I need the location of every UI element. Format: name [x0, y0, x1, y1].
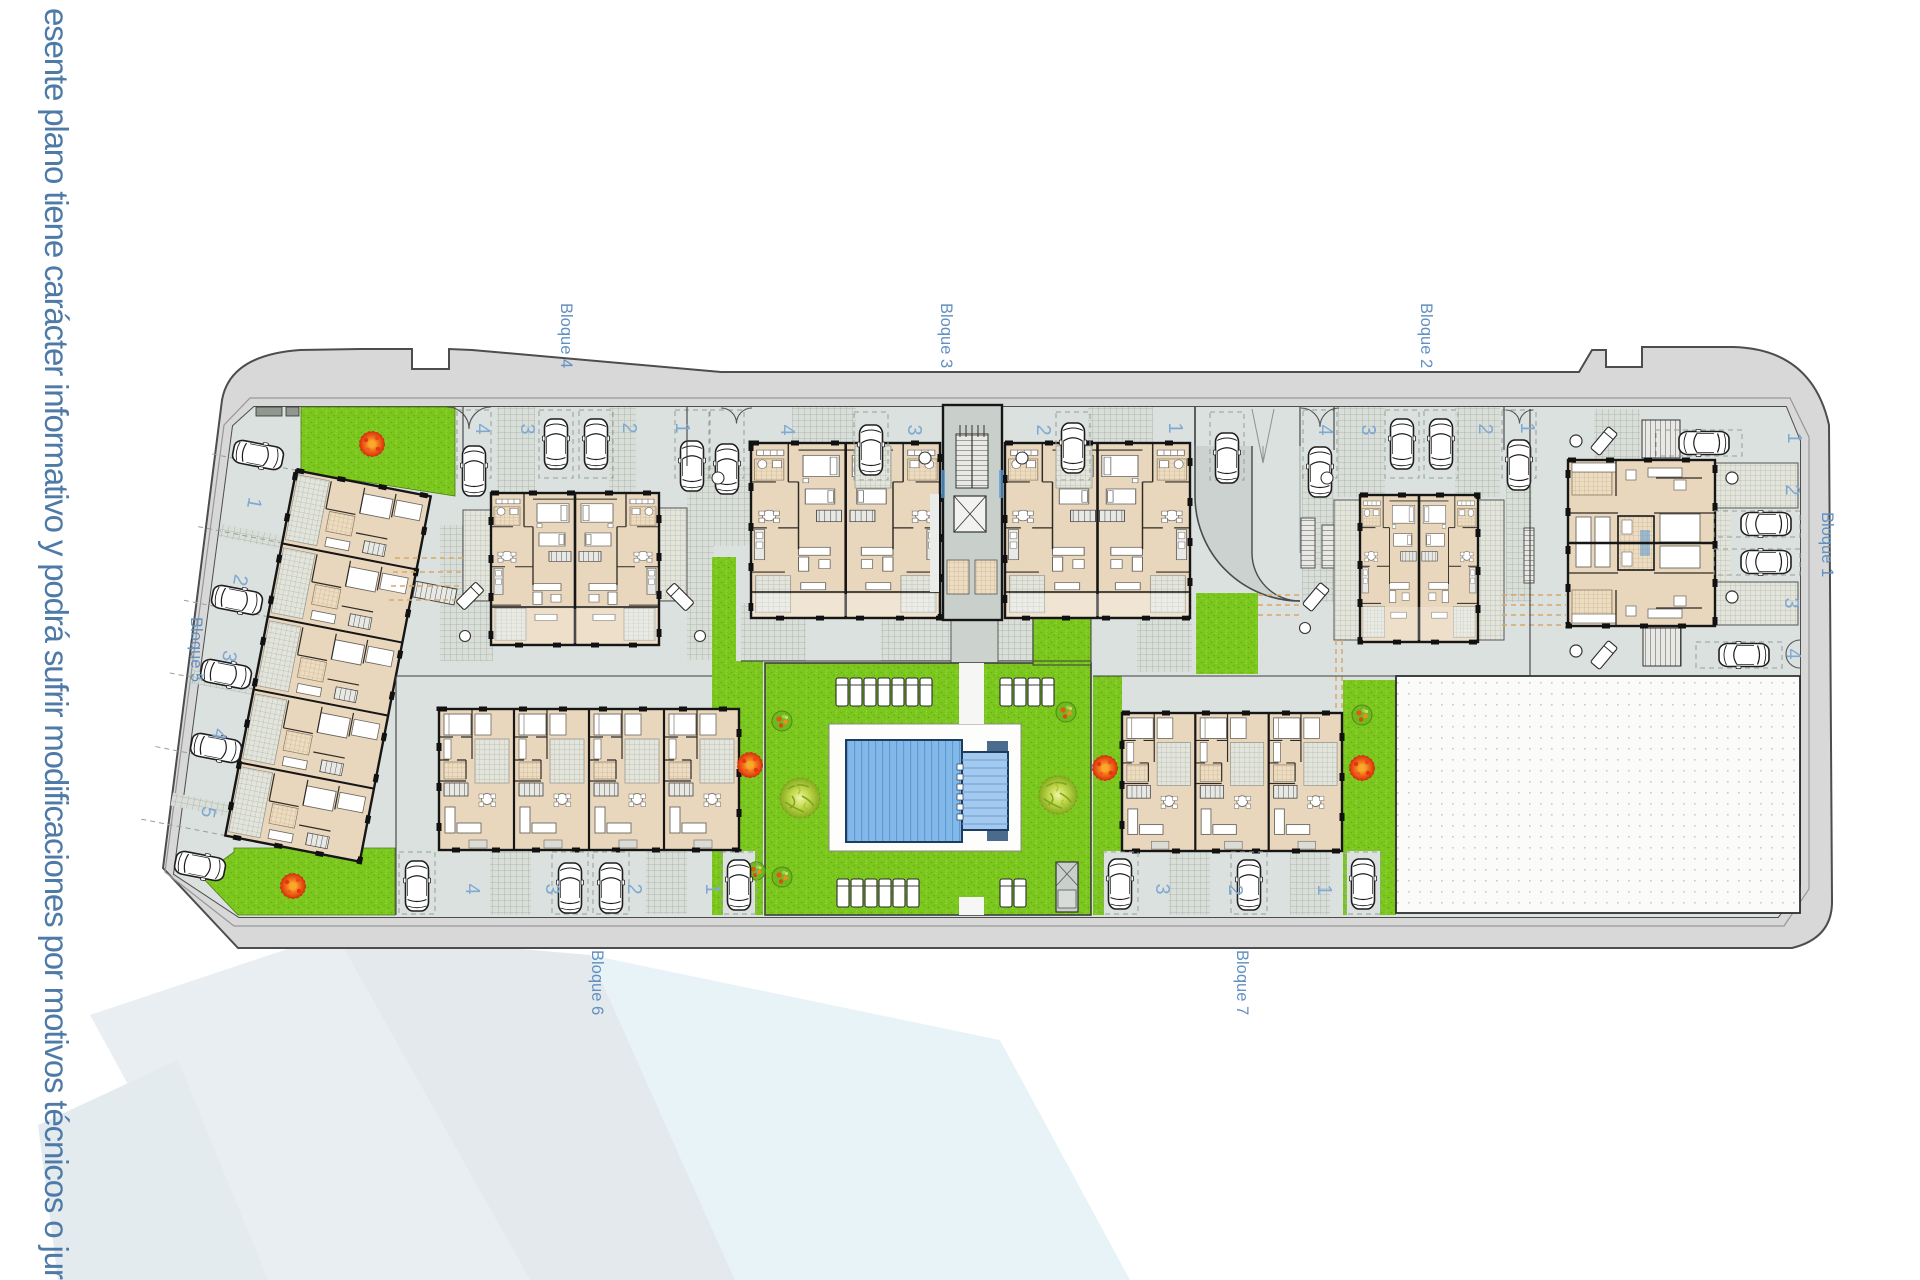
svg-text:3: 3: [1357, 424, 1379, 435]
svg-text:3: 3: [1780, 597, 1802, 608]
svg-text:esente plano tiene carácter in: esente plano tiene carácter informativo …: [38, 8, 75, 1280]
svg-text:Bloque 6: Bloque 6: [588, 950, 606, 1015]
svg-text:4: 4: [461, 883, 483, 894]
svg-text:2: 2: [618, 422, 640, 433]
svg-text:Bloque 1: Bloque 1: [1818, 512, 1836, 577]
svg-text:3: 3: [516, 423, 538, 434]
svg-text:Bloque 5: Bloque 5: [187, 617, 205, 682]
svg-text:2: 2: [1032, 424, 1054, 435]
svg-text:1: 1: [1783, 432, 1805, 443]
svg-text:Bloque 2: Bloque 2: [1417, 303, 1435, 368]
svg-text:4: 4: [1782, 648, 1804, 659]
svg-text:Bloque 4: Bloque 4: [557, 303, 575, 368]
svg-text:4: 4: [1314, 424, 1336, 435]
svg-text:Bloque 7: Bloque 7: [1233, 950, 1251, 1015]
svg-text:4: 4: [776, 424, 798, 435]
svg-text:Bloque 3: Bloque 3: [937, 303, 955, 368]
svg-text:2: 2: [1781, 484, 1803, 495]
svg-text:1: 1: [671, 422, 693, 433]
svg-text:2: 2: [623, 883, 645, 894]
svg-text:1: 1: [701, 883, 723, 894]
svg-text:2: 2: [1474, 423, 1496, 434]
svg-text:1: 1: [1313, 884, 1335, 895]
svg-text:3: 3: [903, 424, 925, 435]
svg-text:2: 2: [1224, 884, 1246, 895]
svg-text:3: 3: [541, 883, 563, 894]
svg-text:3: 3: [1151, 883, 1173, 894]
svg-text:1: 1: [1516, 422, 1538, 433]
svg-text:4: 4: [471, 423, 493, 434]
svg-text:1: 1: [1164, 422, 1186, 433]
